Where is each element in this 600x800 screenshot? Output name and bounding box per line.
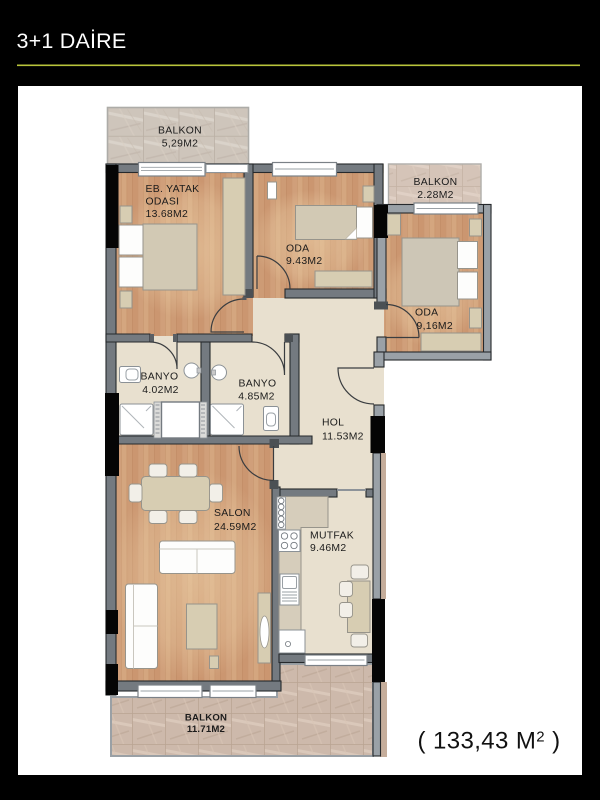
svg-text:ODASI: ODASI <box>146 197 180 208</box>
svg-text:ODA: ODA <box>415 308 438 319</box>
svg-text:9,16M2: 9,16M2 <box>417 321 453 332</box>
svg-text:5,29M2: 5,29M2 <box>162 139 198 150</box>
svg-text:24.59M2: 24.59M2 <box>214 522 257 533</box>
svg-text:ODA: ODA <box>286 244 309 255</box>
svg-text:9.46M2: 9.46M2 <box>310 543 346 554</box>
svg-text:BALKON: BALKON <box>158 126 202 137</box>
svg-text:2.28M2: 2.28M2 <box>417 190 453 201</box>
svg-text:MUTFAK: MUTFAK <box>310 531 354 542</box>
svg-text:BALKON: BALKON <box>185 712 227 723</box>
svg-text:HOL: HOL <box>322 418 344 429</box>
svg-text:9.43M2: 9.43M2 <box>286 256 322 267</box>
svg-text:BALKON: BALKON <box>414 177 458 188</box>
svg-text:4.85M2: 4.85M2 <box>238 392 274 403</box>
svg-text:13.68M2: 13.68M2 <box>146 209 189 220</box>
svg-text:SALON: SALON <box>214 508 251 519</box>
svg-text:4.02M2: 4.02M2 <box>142 385 178 396</box>
svg-text:BANYO: BANYO <box>239 379 277 390</box>
svg-text:EB. YATAK: EB. YATAK <box>146 184 200 195</box>
svg-text:11.71M2: 11.71M2 <box>187 724 225 735</box>
svg-text:3+1 DAİRE: 3+1 DAİRE <box>17 29 127 53</box>
svg-text:BANYO: BANYO <box>141 372 179 383</box>
svg-text:11.53M2: 11.53M2 <box>322 432 364 443</box>
